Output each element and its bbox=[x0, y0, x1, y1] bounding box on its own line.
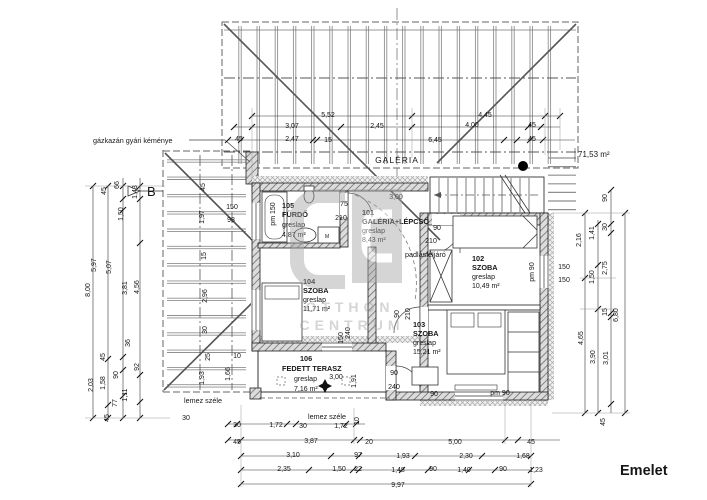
dimension-label: 30 bbox=[202, 326, 209, 334]
staircase bbox=[430, 158, 576, 216]
dimension-label: 2,75 bbox=[602, 261, 609, 275]
roof-hip-right bbox=[437, 24, 576, 163]
dimension-label: 45 bbox=[233, 439, 241, 446]
dimension-label: 1,23 bbox=[529, 467, 543, 474]
dimension-label: 92 bbox=[134, 363, 141, 371]
chimney-dot bbox=[518, 161, 528, 171]
dimension-label: 2,30 bbox=[459, 453, 473, 460]
dimension-label: 90 bbox=[390, 370, 398, 377]
dimension-label: 97 bbox=[354, 452, 362, 459]
dimension-label: 240 bbox=[388, 384, 400, 391]
dimension-label: 3,81 bbox=[122, 281, 129, 295]
dimension-label: 90 bbox=[433, 225, 441, 232]
dimension-label: 45 bbox=[528, 136, 536, 143]
room-finish: greslap bbox=[294, 376, 317, 383]
dimension-label: pm 90 bbox=[490, 390, 510, 397]
dimension-label: 1,72 bbox=[334, 423, 348, 430]
dimension-label: 1,66 bbox=[225, 367, 232, 381]
dimension-label: 30 bbox=[602, 223, 609, 231]
dimension-label: 6,80 bbox=[613, 308, 620, 322]
dimension-label: 210 bbox=[425, 238, 437, 245]
watermark-monogram-right bbox=[352, 189, 402, 283]
dimension-label: 2,03 bbox=[88, 378, 95, 392]
dimension-label: 45 bbox=[235, 136, 243, 143]
dimension-label: 4,45 bbox=[478, 112, 492, 119]
floor-plan-page: B gázkazán gyári kéménye 5,524,453,072,4… bbox=[0, 0, 707, 500]
terrace bbox=[250, 351, 390, 399]
dimension-label: 9,97 bbox=[391, 482, 405, 489]
dimension-label: 30 bbox=[299, 423, 307, 430]
dimension-label: 90 bbox=[429, 466, 437, 473]
dimension-label: 3,10 bbox=[286, 452, 300, 459]
room-area: 7,16 m² bbox=[294, 386, 318, 393]
chimney-note: gázkazán gyári kéménye bbox=[93, 136, 173, 145]
dimension-label: 1,50 bbox=[118, 207, 125, 221]
dimension-label: 5,00 bbox=[448, 439, 462, 446]
dimension-label: 1,48 bbox=[391, 467, 405, 474]
dimension-label: 45 bbox=[104, 414, 111, 422]
chimney-note-group: gázkazán gyári kéménye bbox=[93, 136, 250, 162]
room-102-szoba-label: 102 SZOBA greslap 10,49 m² bbox=[472, 254, 500, 290]
dimension-label: 3,87 bbox=[304, 438, 318, 445]
dimension-label: 45 bbox=[101, 187, 108, 195]
dimension-label: pm 90 bbox=[529, 262, 536, 282]
room-area: 10,49 m² bbox=[472, 283, 500, 290]
dimension-label: 25 bbox=[205, 353, 212, 361]
dimension-label: 1,93 bbox=[396, 453, 410, 460]
dimension-label: 30 bbox=[182, 415, 190, 422]
dimension-label: 3,01 bbox=[603, 351, 610, 365]
dimension-label: 210 bbox=[335, 215, 347, 222]
room-number: 103 bbox=[413, 320, 425, 329]
dimension-label: 1,11 bbox=[122, 388, 129, 401]
room-name: SZOBA bbox=[413, 329, 439, 338]
star-marker bbox=[318, 379, 332, 393]
dimension-label: 5,07 bbox=[106, 260, 113, 274]
room-number: 102 bbox=[472, 254, 484, 263]
dimension-label: 150 bbox=[338, 332, 345, 344]
dimension-label: 1,97 bbox=[199, 210, 206, 224]
washing-machine-label: M bbox=[325, 234, 329, 240]
room-name: SZOBA bbox=[472, 263, 498, 272]
dimension-label: 22 bbox=[354, 466, 362, 473]
dimension-label: 30 bbox=[233, 422, 241, 429]
desk bbox=[412, 367, 438, 385]
slab-edge-label-1: lemez széle bbox=[184, 396, 222, 405]
galeria-label: GALÉRIA bbox=[375, 155, 419, 165]
dimension-label: 6,45 bbox=[428, 137, 442, 144]
watermark-line2: CENTRUM bbox=[300, 317, 405, 333]
dimension-label: 210 bbox=[405, 308, 412, 320]
room-number: 106 bbox=[300, 354, 312, 363]
dimension-label: 1,91 bbox=[351, 374, 358, 388]
dimension-label: 15 bbox=[201, 252, 208, 260]
attic-access-label: padlásfeljáró bbox=[405, 250, 446, 259]
dimension-label: 2,47 bbox=[285, 136, 299, 143]
total-area: 71,53 m² bbox=[578, 150, 610, 159]
dimension-label: 1,58 bbox=[100, 376, 107, 390]
dimension-label: 150 bbox=[558, 277, 570, 284]
watermark-line1: OTTHON bbox=[305, 299, 394, 315]
dimension-label: 1,41 bbox=[589, 226, 596, 240]
dimension-label: 90 bbox=[499, 466, 507, 473]
dimension-label: 15 bbox=[602, 308, 609, 316]
dimension-label: 15 bbox=[324, 137, 332, 144]
slab-edge-label-2: lemez széle bbox=[308, 412, 346, 421]
dimension-label: 2,45 bbox=[370, 123, 384, 130]
dimension-label: 2,35 bbox=[277, 466, 291, 473]
room-finish: greslap bbox=[413, 340, 436, 347]
dimension-label: 36 bbox=[125, 339, 132, 347]
dimension-label: 3,07 bbox=[285, 123, 299, 130]
dimension-label: 90 bbox=[430, 391, 438, 398]
dimension-label: 1,72 bbox=[269, 422, 283, 429]
dimension-label: 1,93 bbox=[199, 371, 206, 385]
terrace-post bbox=[250, 388, 261, 399]
drawing-title: Emelet bbox=[620, 463, 668, 479]
dimension-label: 4,00 bbox=[465, 122, 479, 129]
dimension-label: 150 bbox=[558, 264, 570, 271]
dimension-label: 8,00 bbox=[85, 283, 92, 297]
dimension-label: 10 bbox=[354, 417, 361, 425]
dimension-label: 45 bbox=[200, 183, 207, 191]
dimension-label: 66 bbox=[114, 181, 121, 189]
dimension-label: 1,43 bbox=[132, 185, 139, 199]
dimension-label: 4,65 bbox=[578, 331, 585, 345]
dimension-label: 1,68 bbox=[516, 453, 530, 460]
dimension-label: 77 bbox=[112, 399, 119, 407]
dimension-label: 10 bbox=[233, 353, 241, 360]
bed-102 bbox=[453, 216, 537, 248]
dimension-label: 3,90 bbox=[590, 350, 597, 364]
room-area: 15,21 m² bbox=[413, 349, 441, 356]
dimension-label: 20 bbox=[365, 439, 373, 446]
dimension-label: 2,16 bbox=[576, 233, 583, 247]
dimension-label: 90 bbox=[113, 371, 120, 379]
dimension-label: 45 bbox=[600, 418, 607, 426]
dimension-label: 45 bbox=[527, 439, 535, 446]
room-name: FEDETT TERASZ bbox=[282, 364, 342, 373]
dimension-label: 150 bbox=[226, 204, 238, 211]
dimension-label: 5,97 bbox=[91, 258, 98, 272]
dimension-label: 90 bbox=[602, 194, 609, 202]
room-finish: greslap bbox=[472, 274, 495, 281]
dimension-label: 45 bbox=[100, 353, 107, 361]
dimension-label: 1,50 bbox=[332, 466, 346, 473]
floor-plan-canvas: B gázkazán gyári kéménye 5,524,453,072,4… bbox=[0, 0, 707, 500]
dimension-label: 45 bbox=[528, 122, 536, 129]
watermark: OTTHON CENTRUM bbox=[297, 189, 405, 333]
dimension-label: 2,96 bbox=[202, 289, 209, 303]
dimension-label: 3,00 bbox=[329, 374, 343, 381]
dimension-label: 5,52 bbox=[321, 112, 335, 119]
dimension-label: 1,50 bbox=[589, 270, 596, 284]
dimension-label: 4,56 bbox=[134, 280, 141, 294]
dimension-label: pm 150 bbox=[270, 202, 277, 225]
dimension-label: 1,40 bbox=[457, 467, 471, 474]
dimension-label: 98 bbox=[227, 217, 235, 224]
